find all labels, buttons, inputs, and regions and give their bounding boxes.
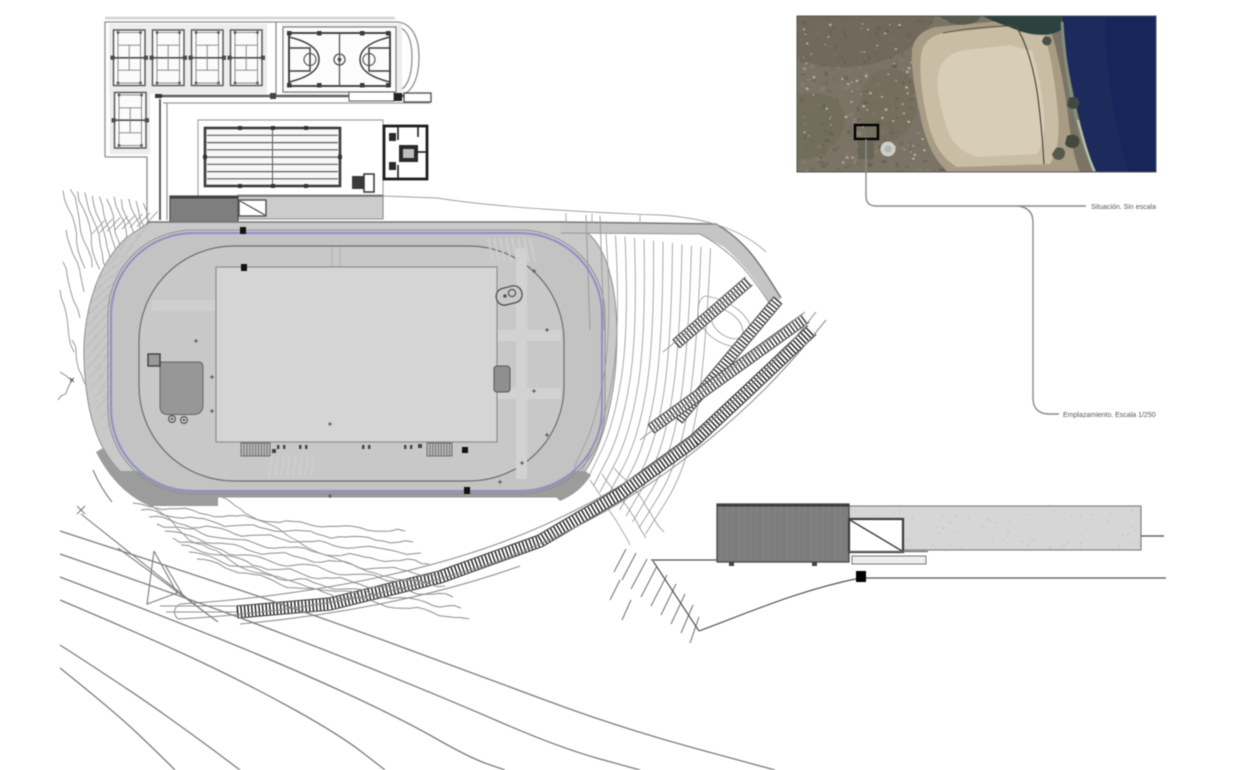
svg-text:Situación. Sin escala: Situación. Sin escala bbox=[1091, 204, 1156, 211]
svg-text:Emplazamiento. Escala 1/250: Emplazamiento. Escala 1/250 bbox=[1063, 412, 1156, 419]
